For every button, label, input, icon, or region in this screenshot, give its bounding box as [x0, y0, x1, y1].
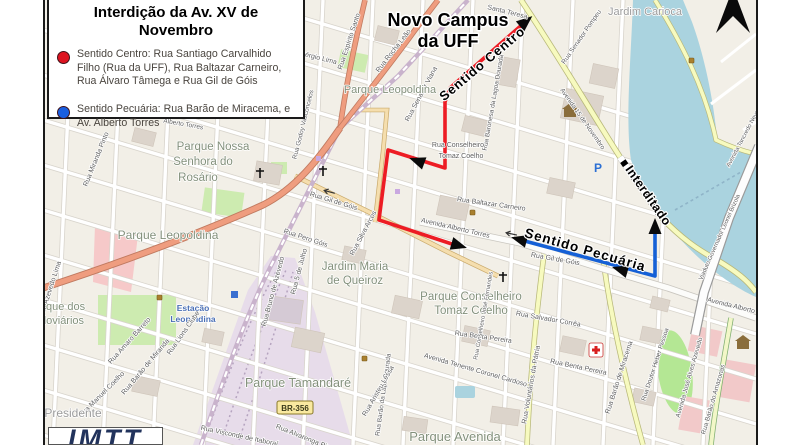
map-label: Rua Senador Pompeu	[560, 8, 603, 65]
map-label: Rodoviários	[43, 315, 85, 327]
legend-title-line2: Interdição da Av. XV de Novembro	[55, 4, 297, 39]
hospital-icon	[589, 343, 603, 357]
map-label: Jardim Carioca	[608, 6, 683, 18]
page-margin-left	[0, 0, 45, 445]
map-label: Estação	[177, 303, 210, 313]
page-margin-right	[756, 0, 800, 445]
br-shield: BR-356	[277, 401, 313, 414]
legend-item-red-text: Sentido Centro: Rua Santiago Carvalhido …	[77, 48, 297, 89]
legend-box: Desvio Interdição da Av. XV de Novembro …	[47, 0, 305, 119]
map-label: Parque Avenida	[409, 429, 501, 444]
campus-label: da UFF	[418, 31, 479, 51]
map-label: Tomaz Coelho	[434, 305, 508, 317]
imtt-logo-text: IMTT	[68, 427, 143, 445]
red-route-bullet-icon	[57, 51, 70, 64]
legend-item-blue: Sentido Pecuária: Rua Barão de Miracema,…	[55, 103, 297, 131]
map-label: Presidente	[44, 406, 102, 420]
map-label: Tomaz Coelho	[439, 153, 484, 160]
map-label: Parque Leopoldina	[344, 84, 437, 96]
campus-label: Novo Campus	[387, 10, 508, 30]
imtt-logo: IMTT	[48, 427, 163, 445]
map-label: Senhora do	[173, 156, 232, 168]
map-label: Parque dos	[43, 301, 86, 313]
map-label: Jardim Maria	[322, 261, 389, 273]
legend-item-blue-text: Sentido Pecuária: Rua Barão de Miracema,…	[77, 103, 297, 131]
map-label: Parque Nossa	[177, 141, 250, 153]
map-label: Rua Salvador Corrêa	[515, 310, 581, 328]
map-label: Parque Leopoldina	[118, 228, 219, 242]
map-label: de Queiroz	[327, 275, 384, 287]
blue-route-bullet-icon	[57, 106, 70, 119]
station-icon	[231, 291, 238, 298]
map-label: Parque Tamandaré	[245, 376, 351, 390]
pool	[455, 386, 475, 398]
map-label: Rua Conselheiro	[432, 142, 484, 149]
svg-text:BR-356: BR-356	[281, 404, 309, 413]
map-label: Parque Conselheiro	[420, 291, 522, 303]
map-label: Rosário	[178, 172, 218, 184]
legend-item-red: Sentido Centro: Rua Santiago Carvalhido …	[55, 48, 297, 89]
screenshot-root: { "legend": { "title_line1": "Desvio", "…	[0, 0, 800, 445]
parking-icon: P	[594, 161, 602, 175]
